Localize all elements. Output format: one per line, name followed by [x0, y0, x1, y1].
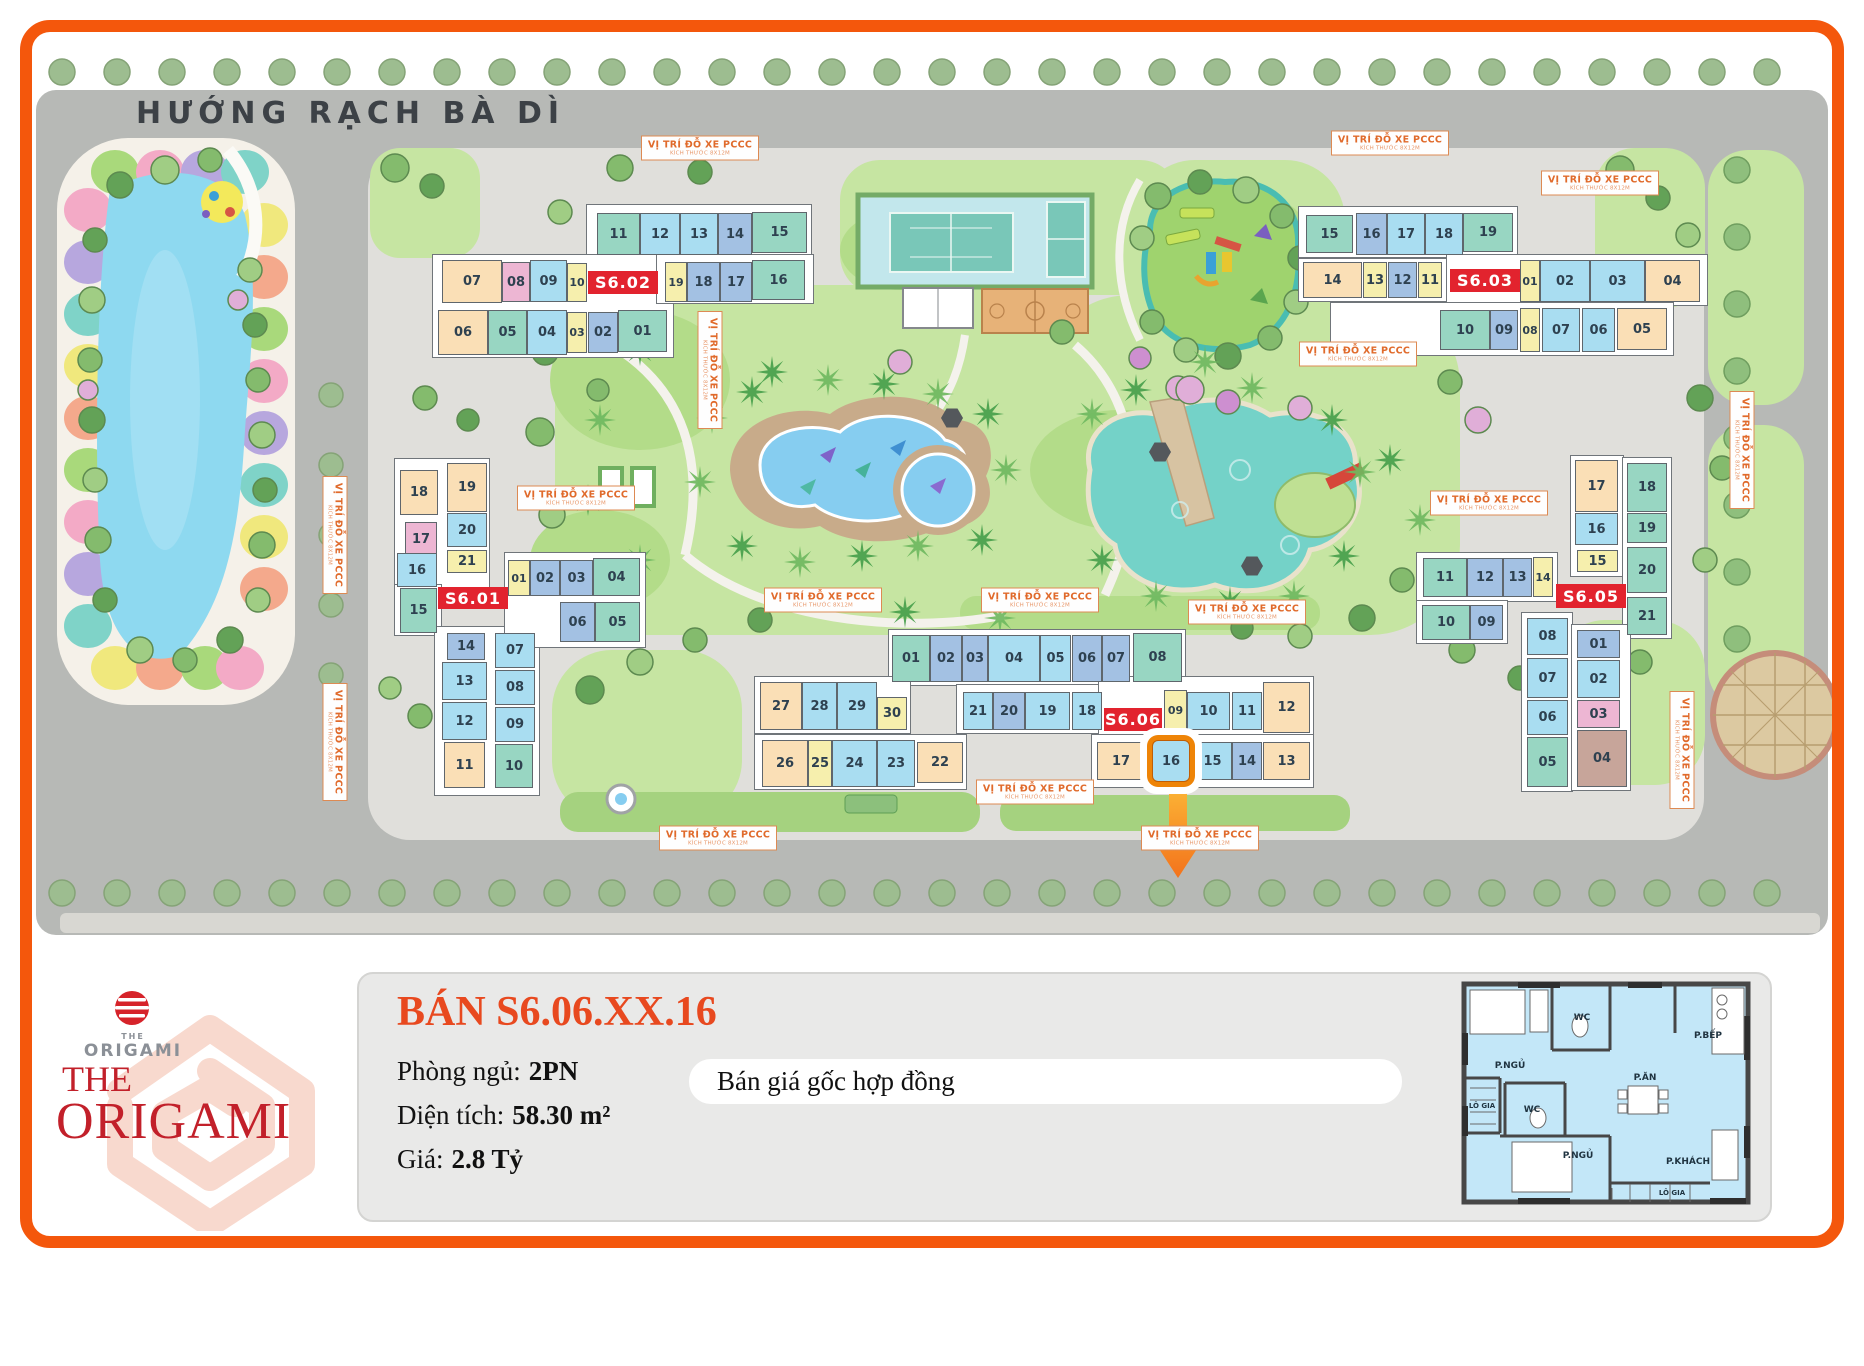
parking-sign-line1: VỊ TRÍ ĐỖ XE PCCC — [1191, 604, 1303, 615]
unit-S6.03-13[interactable]: 13 — [1363, 262, 1387, 298]
parking-sign-line1: VỊ TRÍ ĐỖ XE PCCC — [1544, 175, 1656, 186]
unit-S6.01-05[interactable]: 05 — [595, 602, 640, 642]
parking-sign-line2: KÍCH THƯỚC 8X12M — [767, 603, 879, 609]
unit-S6.01-15[interactable]: 15 — [400, 588, 437, 633]
parking-sign: VỊ TRÍ ĐỖ XE PCCC KÍCH THƯỚC 8X12M — [698, 311, 723, 429]
unit-S6.06-27[interactable]: 27 — [760, 682, 802, 730]
building-label-S6.06: S6.06 — [1104, 708, 1162, 731]
room-label: LÔ GIA — [1469, 1101, 1496, 1110]
unit-S6.01-04[interactable]: 04 — [593, 558, 640, 596]
parking-sign-line1: VỊ TRÍ ĐỖ XE PCCC — [333, 479, 344, 591]
unit-S6.05-10[interactable]: 10 — [1422, 605, 1470, 640]
unit-S6.03-10[interactable]: 10 — [1440, 310, 1490, 350]
unit-S6.03-05[interactable]: 05 — [1617, 308, 1667, 350]
unit-S6.06-13[interactable]: 13 — [1263, 742, 1310, 780]
room-label: P.ĂN — [1634, 1071, 1657, 1083]
parking-sign-line1: VỊ TRÍ ĐỖ XE PCCC — [333, 686, 344, 798]
unit-info-panel: BÁN S6.06.XX.16 Phòng ngủ:2PN Diện tích:… — [357, 972, 1772, 1222]
parking-sign: VỊ TRÍ ĐỖ XE PCCC KÍCH THƯỚC 8X12M — [1430, 491, 1548, 516]
unit-S6.02-15[interactable]: 15 — [752, 212, 807, 253]
parking-sign-line2: KÍCH THƯỚC 8X12M — [979, 795, 1091, 801]
unit-S6.02-03[interactable]: 03 — [567, 312, 587, 353]
unit-S6.03-07[interactable]: 07 — [1542, 308, 1580, 352]
unit-S6.06-28[interactable]: 28 — [802, 682, 837, 730]
parking-sign: VỊ TRÍ ĐỖ XE PCCC KÍCH THƯỚC 8X12M — [517, 486, 635, 511]
unit-S6.05-17[interactable]: 17 — [1575, 460, 1618, 512]
unit-S6.05-03[interactable]: 03 — [1577, 700, 1620, 728]
parking-sign-line1: VỊ TRÍ ĐỖ XE PCCC — [984, 592, 1096, 603]
spec-bedrooms: Phòng ngủ:2PN — [397, 1056, 578, 1087]
unit-S6.01-11[interactable]: 11 — [444, 742, 485, 788]
building-label-S6.02: S6.02 — [588, 271, 658, 294]
room-label: WC — [1574, 1013, 1591, 1023]
parking-sign: VỊ TRÍ ĐỖ XE PCCC KÍCH THƯỚC 8X12M — [1299, 342, 1417, 367]
parking-sign-line2: KÍCH THƯỚC 8X12M — [1433, 506, 1545, 512]
unit-S6.03-14[interactable]: 14 — [1303, 262, 1362, 298]
spec-value: 58.30 m² — [512, 1100, 610, 1130]
parking-sign-line2: KÍCH THƯỚC 8X12M — [1191, 615, 1303, 621]
unit-S6.06-30[interactable]: 30 — [877, 697, 907, 730]
unit-S6.06-29[interactable]: 29 — [837, 682, 877, 730]
unit-S6.03-02[interactable]: 02 — [1540, 260, 1590, 302]
parking-sign: VỊ TRÍ ĐỖ XE PCCC KÍCH THƯỚC 8X12M — [1670, 691, 1695, 809]
floorplan: P.NGỦ WC P.BẾP LÔ GIA WC P.ĂN P.NGỦ P.KH… — [1460, 978, 1752, 1210]
parking-sign-line1: VỊ TRÍ ĐỖ XE PCCC — [1334, 135, 1446, 146]
parking-sign: VỊ TRÍ ĐỖ XE PCCC KÍCH THƯỚC 8X12M — [659, 826, 777, 851]
parking-sign-line1: VỊ TRÍ ĐỖ XE PCCC — [662, 830, 774, 841]
unit-S6.03-09[interactable]: 09 — [1490, 310, 1518, 350]
unit-S6.02-10[interactable]: 10 — [567, 263, 587, 302]
unit-S6.06-10[interactable]: 10 — [1187, 692, 1230, 730]
unit-S6.01-13[interactable]: 13 — [442, 662, 487, 700]
unit-S6.03-11[interactable]: 11 — [1418, 262, 1442, 298]
unit-S6.05-08[interactable]: 08 — [1527, 618, 1568, 655]
unit-S6.03-12[interactable]: 12 — [1388, 262, 1417, 298]
unit-S6.01-19[interactable]: 19 — [447, 463, 487, 512]
parking-sign-line1: VỊ TRÍ ĐỖ XE PCCC — [644, 140, 756, 151]
parking-sign-line2: KÍCH THƯỚC 8X12M — [662, 841, 774, 847]
building-label-S6.01: S6.01 — [438, 587, 508, 609]
unit-S6.03-15[interactable]: 15 — [1306, 215, 1353, 253]
parking-sign-line1: VỊ TRÍ ĐỖ XE PCCC — [708, 314, 719, 426]
unit-S6.06-03[interactable]: 03 — [962, 635, 988, 682]
unit-S6.02-18[interactable]: 18 — [687, 262, 720, 302]
unit-S6.01-12[interactable]: 12 — [442, 702, 487, 740]
unit-S6.06-12[interactable]: 12 — [1263, 682, 1310, 733]
parking-sign: VỊ TRÍ ĐỖ XE PCCC KÍCH THƯỚC 8X12M — [1188, 600, 1306, 625]
unit-S6.02-07[interactable]: 07 — [442, 260, 502, 303]
unit-S6.03-18[interactable]: 18 — [1425, 213, 1463, 255]
unit-S6.02-04[interactable]: 04 — [527, 310, 567, 355]
unit-S6.03-01[interactable]: 01 — [1520, 260, 1540, 302]
parking-sign-line1: VỊ TRÍ ĐỖ XE PCCC — [1144, 830, 1256, 841]
unit-S6.01-03[interactable]: 03 — [560, 560, 593, 596]
spec-label: Diện tích: — [397, 1100, 504, 1130]
parking-sign-line2: KÍCH THƯỚC 8X12M — [1302, 357, 1414, 363]
spec-label: Phòng ngủ: — [397, 1056, 521, 1086]
unit-S6.05-07[interactable]: 07 — [1527, 658, 1568, 698]
unit-S6.06-21[interactable]: 21 — [963, 692, 993, 730]
parking-sign-line1: VỊ TRÍ ĐỖ XE PCCC — [767, 592, 879, 603]
unit-S6.06-14[interactable]: 14 — [1232, 742, 1262, 780]
unit-S6.06-23[interactable]: 23 — [877, 740, 915, 787]
unit-S6.01-14[interactable]: 14 — [447, 633, 485, 660]
building-label-S6.05: S6.05 — [1556, 584, 1626, 608]
unit-S6.02-08[interactable]: 08 — [502, 262, 530, 302]
parking-sign-line1: VỊ TRÍ ĐỖ XE PCCC — [1740, 394, 1751, 506]
unit-S6.02-16[interactable]: 16 — [752, 260, 805, 300]
parking-sign: VỊ TRÍ ĐỖ XE PCCC KÍCH THƯỚC 8X12M — [1541, 171, 1659, 196]
unit-S6.06-09[interactable]: 09 — [1164, 690, 1187, 730]
parking-sign: VỊ TRÍ ĐỖ XE PCCC KÍCH THƯỚC 8X12M — [764, 588, 882, 613]
unit-S6.05-11[interactable]: 11 — [1423, 558, 1467, 597]
unit-S6.01-20[interactable]: 20 — [447, 513, 487, 547]
parking-sign: VỊ TRÍ ĐỖ XE PCCC KÍCH THƯỚC 8X12M — [641, 136, 759, 161]
unit-S6.02-11[interactable]: 11 — [597, 213, 640, 255]
unit-S6.06-26[interactable]: 26 — [762, 740, 808, 787]
unit-S6.01-18[interactable]: 18 — [400, 470, 438, 515]
page: HƯỚNG RẠCH BÀ DÌ 11121314150708091019181… — [0, 0, 1864, 1366]
logo-origami-big: ORIGAMI — [56, 1092, 291, 1151]
unit-S6.01-08[interactable]: 08 — [495, 670, 535, 705]
unit-S6.06-18[interactable]: 18 — [1072, 692, 1102, 730]
unit-S6.01-17[interactable]: 17 — [405, 522, 437, 557]
parking-sign-line1: VỊ TRÍ ĐỖ XE PCCC — [520, 490, 632, 501]
unit-S6.01-16[interactable]: 16 — [397, 553, 437, 587]
unit-S6.01-09[interactable]: 09 — [495, 707, 535, 742]
spec-value: 2.8 Tỷ — [452, 1144, 524, 1174]
parking-sign: VỊ TRÍ ĐỖ XE PCCC KÍCH THƯỚC 8X12M — [1730, 391, 1755, 509]
unit-S6.06-15[interactable]: 15 — [1193, 742, 1232, 780]
unit-S6.06-24[interactable]: 24 — [832, 740, 877, 787]
unit-S6.05-09[interactable]: 09 — [1470, 605, 1503, 640]
unit-sale-title: BÁN S6.06.XX.16 — [397, 988, 717, 1036]
unit-S6.05-01[interactable]: 01 — [1577, 630, 1620, 658]
map-title: HƯỚNG RẠCH BÀ DÌ — [136, 96, 565, 131]
unit-S6.02-13[interactable]: 13 — [680, 213, 718, 255]
unit-S6.05-19[interactable]: 19 — [1627, 513, 1667, 543]
unit-S6.03-06[interactable]: 06 — [1582, 308, 1615, 352]
unit-S6.05-06[interactable]: 06 — [1527, 700, 1568, 735]
unit-S6.05-13[interactable]: 13 — [1503, 558, 1532, 597]
unit-S6.03-17[interactable]: 17 — [1387, 213, 1425, 255]
unit-S6.06-22[interactable]: 22 — [917, 742, 963, 783]
parking-sign-line1: VỊ TRÍ ĐỖ XE PCCC — [1302, 346, 1414, 357]
unit-S6.02-05[interactable]: 05 — [488, 310, 527, 355]
unit-S6.06-08[interactable]: 08 — [1133, 633, 1182, 682]
parking-sign-line2: KÍCH THƯỚC 8X12M — [984, 603, 1096, 609]
logo-block: THE ORIGAMI THE ORIGAMI — [50, 966, 355, 1231]
parking-sign: VỊ TRÍ ĐỖ XE PCCC KÍCH THƯỚC 8X12M — [323, 683, 348, 801]
parking-sign: VỊ TRÍ ĐỖ XE PCCC KÍCH THƯỚC 8X12M — [981, 588, 1099, 613]
unit-S6.01-21[interactable]: 21 — [447, 550, 487, 573]
unit-S6.05-05[interactable]: 05 — [1527, 737, 1568, 787]
parking-sign-line1: VỊ TRÍ ĐỖ XE PCCC — [1680, 694, 1691, 806]
unit-S6.05-14[interactable]: 14 — [1533, 557, 1553, 597]
parking-sign-line2: KÍCH THƯỚC 8X12M — [520, 501, 632, 507]
spec-value: 2PN — [529, 1056, 579, 1086]
unit-S6.02-02[interactable]: 02 — [588, 312, 618, 353]
unit-S6.05-20[interactable]: 20 — [1627, 547, 1667, 593]
unit-S6.01-01[interactable]: 01 — [508, 560, 530, 596]
unit-S6.06-02[interactable]: 02 — [930, 635, 962, 682]
note-box: Bán giá gốc hợp đồng — [689, 1059, 1402, 1104]
unit-S6.06-17[interactable]: 17 — [1097, 742, 1145, 780]
parking-sign-line2: KÍCH THƯỚC 8X12M — [1144, 841, 1256, 847]
unit-S6.02-12[interactable]: 12 — [640, 213, 680, 255]
unit-S6.05-16[interactable]: 16 — [1575, 513, 1618, 545]
parking-sign-line2: KÍCH THƯỚC 8X12M — [644, 151, 756, 157]
unit-S6.05-04[interactable]: 04 — [1577, 730, 1627, 787]
unit-S6.01-07[interactable]: 07 — [495, 633, 535, 668]
unit-S6.06-16-selected[interactable]: 16 — [1152, 740, 1190, 782]
unit-S6.05-15[interactable]: 15 — [1577, 550, 1618, 572]
unit-S6.02-09[interactable]: 09 — [530, 260, 567, 302]
unit-S6.05-21[interactable]: 21 — [1627, 597, 1667, 635]
dome — [1713, 653, 1837, 777]
room-label: WC — [1524, 1105, 1541, 1115]
unit-S6.03-16[interactable]: 16 — [1356, 213, 1387, 255]
unit-S6.05-18[interactable]: 18 — [1627, 463, 1667, 512]
spec-label: Giá: — [397, 1144, 444, 1174]
unit-S6.06-05[interactable]: 05 — [1040, 635, 1071, 682]
unit-S6.03-19[interactable]: 19 — [1463, 213, 1513, 252]
room-label: LÔ GIA — [1659, 1188, 1686, 1197]
unit-S6.03-08[interactable]: 08 — [1520, 308, 1540, 352]
unit-S6.06-04[interactable]: 04 — [988, 635, 1040, 682]
spec-area: Diện tích:58.30 m² — [397, 1100, 610, 1131]
unit-S6.06-20[interactable]: 20 — [993, 692, 1025, 730]
unit-S6.02-01[interactable]: 01 — [618, 310, 667, 352]
unit-S6.06-19[interactable]: 19 — [1025, 692, 1070, 730]
parking-sign-line2: KÍCH THƯỚC 8X12M — [1334, 146, 1446, 152]
unit-S6.02-06[interactable]: 06 — [438, 310, 488, 355]
unit-S6.06-01[interactable]: 01 — [892, 635, 930, 682]
parking-sign: VỊ TRÍ ĐỖ XE PCCC KÍCH THƯỚC 8X12M — [1331, 131, 1449, 156]
unit-S6.06-07[interactable]: 07 — [1102, 635, 1130, 682]
room-label: P.KHÁCH — [1666, 1155, 1710, 1167]
unit-S6.01-06[interactable]: 06 — [560, 602, 595, 642]
unit-S6.02-19[interactable]: 19 — [665, 262, 687, 302]
unit-S6.05-02[interactable]: 02 — [1577, 660, 1620, 698]
unit-S6.06-25[interactable]: 25 — [808, 740, 832, 787]
unit-S6.05-12[interactable]: 12 — [1467, 558, 1503, 597]
unit-S6.02-17[interactable]: 17 — [720, 262, 752, 302]
logo-wordmark-small: THE ORIGAMI — [78, 986, 188, 1061]
parking-sign: VỊ TRÍ ĐỖ XE PCCC KÍCH THƯỚC 8X12M — [323, 476, 348, 594]
logo-the-small: THE — [78, 1032, 188, 1041]
building-label-S6.03: S6.03 — [1450, 269, 1520, 292]
parking-sign: VỊ TRÍ ĐỖ XE PCCC KÍCH THƯỚC 8X12M — [1141, 826, 1259, 851]
unit-S6.02-14[interactable]: 14 — [718, 213, 752, 255]
unit-S6.03-03[interactable]: 03 — [1590, 260, 1645, 302]
unit-S6.03-04[interactable]: 04 — [1645, 260, 1700, 302]
unit-S6.06-11[interactable]: 11 — [1232, 692, 1262, 730]
unit-S6.06-06[interactable]: 06 — [1072, 635, 1102, 682]
spec-price: Giá:2.8 Tỷ — [397, 1144, 523, 1175]
parking-sign: VỊ TRÍ ĐỖ XE PCCC KÍCH THƯỚC 8X12M — [976, 780, 1094, 805]
unit-S6.01-02[interactable]: 02 — [530, 560, 560, 596]
parking-sign-line1: VỊ TRÍ ĐỖ XE PCCC — [1433, 495, 1545, 506]
unit-S6.01-10[interactable]: 10 — [495, 744, 533, 788]
parking-sign-line2: KÍCH THƯỚC 8X12M — [1544, 186, 1656, 192]
parking-sign-line1: VỊ TRÍ ĐỖ XE PCCC — [979, 784, 1091, 795]
